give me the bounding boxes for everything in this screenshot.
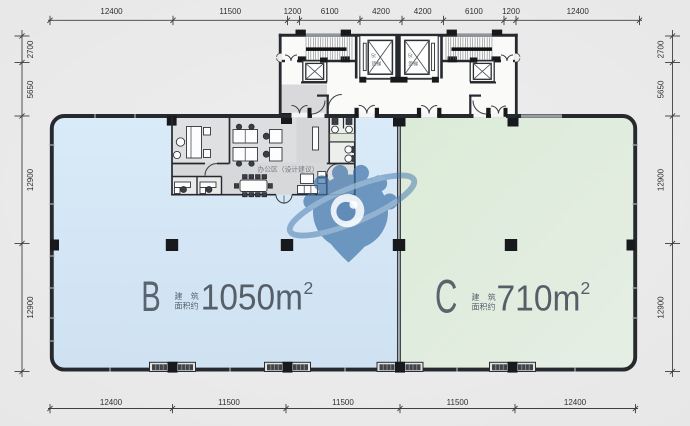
svg-text:5650: 5650	[26, 80, 35, 98]
svg-text:6100: 6100	[321, 7, 339, 16]
svg-text:12400: 12400	[100, 398, 123, 407]
svg-text:1050m: 1050m	[201, 277, 303, 318]
svg-text:12400: 12400	[564, 398, 587, 407]
svg-text:12900: 12900	[657, 168, 666, 191]
svg-text:建 筑: 建 筑	[175, 291, 202, 301]
svg-text:货梯: 货梯	[371, 61, 381, 68]
svg-text:货梯: 货梯	[408, 61, 418, 68]
svg-text:11500: 11500	[218, 398, 240, 407]
svg-text:11500: 11500	[332, 398, 354, 407]
svg-text:5t: 5t	[408, 54, 413, 60]
svg-text:面积约: 面积约	[472, 302, 496, 312]
svg-text:11500: 11500	[219, 7, 241, 16]
svg-text:B: B	[141, 272, 160, 320]
svg-text:6100: 6100	[465, 7, 483, 16]
svg-text:5650: 5650	[657, 80, 666, 98]
svg-text:4200: 4200	[372, 7, 390, 16]
svg-text:2700: 2700	[26, 40, 35, 58]
svg-text:办公区（设计建议）: 办公区（设计建议）	[257, 164, 318, 173]
svg-text:12900: 12900	[26, 296, 35, 319]
svg-text:4200: 4200	[414, 7, 432, 16]
svg-text:710m: 710m	[497, 278, 581, 319]
svg-text:面积约: 面积约	[175, 301, 199, 311]
svg-text:12400: 12400	[567, 7, 590, 16]
svg-text:2: 2	[581, 278, 591, 298]
svg-text:12900: 12900	[657, 296, 666, 319]
svg-text:12900: 12900	[26, 168, 35, 191]
svg-text:建 筑: 建 筑	[472, 292, 499, 302]
svg-text:12400: 12400	[100, 7, 123, 16]
svg-text:5t: 5t	[371, 54, 376, 60]
svg-text:2700: 2700	[657, 40, 666, 58]
svg-text:C: C	[435, 271, 457, 323]
svg-text:2: 2	[304, 278, 314, 298]
svg-text:11500: 11500	[447, 398, 469, 407]
svg-text:1200: 1200	[284, 7, 302, 16]
svg-text:1200: 1200	[502, 7, 520, 16]
